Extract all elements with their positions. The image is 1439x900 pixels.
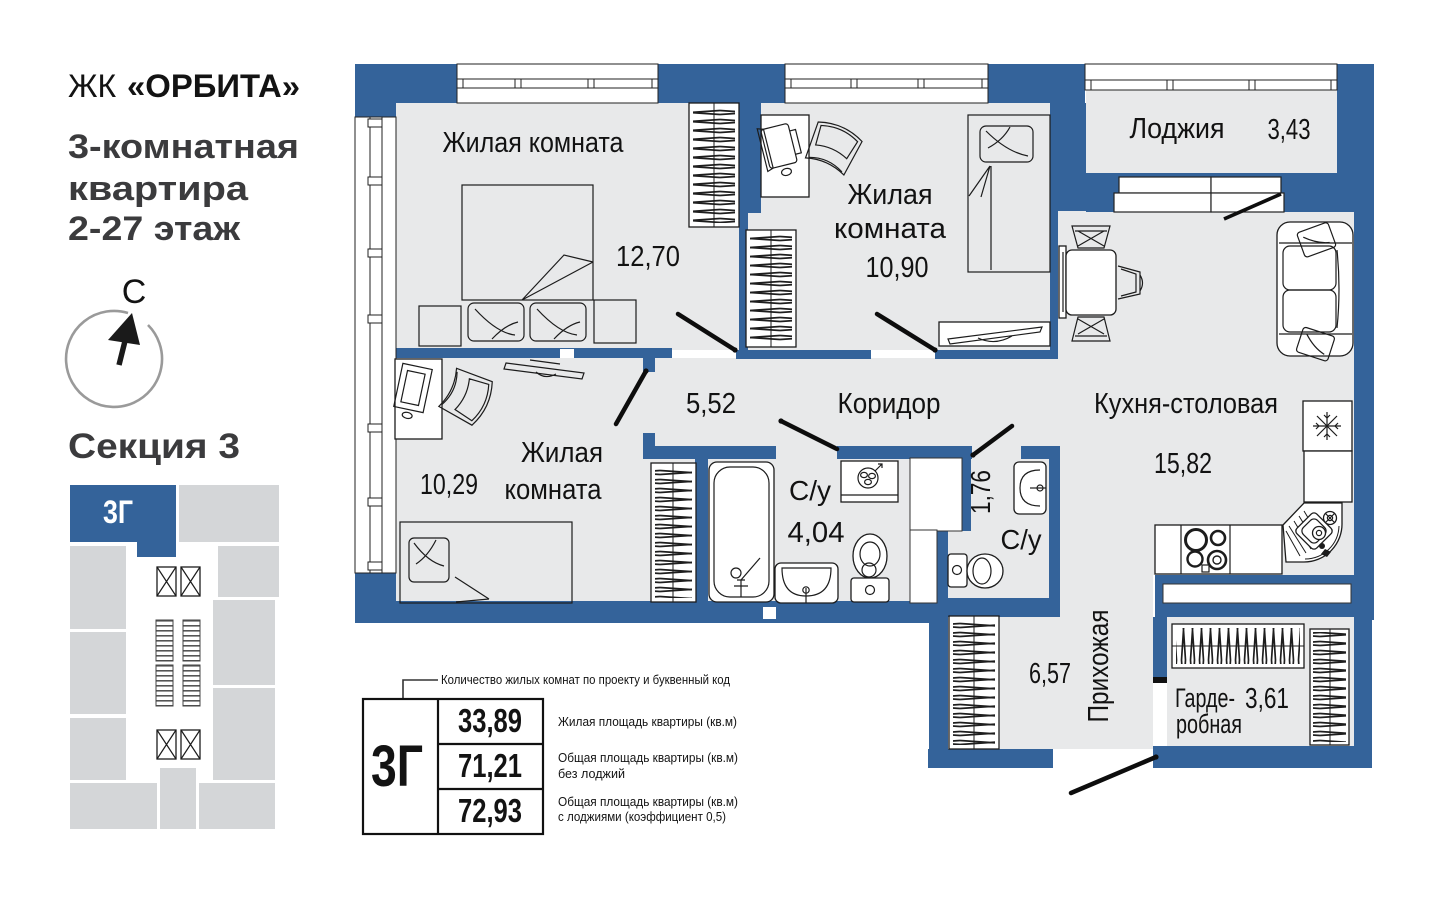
svg-text:3,61: 3,61 [1245,683,1289,715]
svg-text:комната: комната [834,213,947,245]
svg-text:12,70: 12,70 [616,241,680,273]
svg-text:6,57: 6,57 [1029,658,1071,690]
svg-text:3,43: 3,43 [1268,114,1311,146]
svg-text:5,52: 5,52 [686,388,736,420]
svg-text:Количество жилых комнат по про: Количество жилых комнат по проекту и бук… [441,673,731,687]
svg-text:3Г: 3Г [371,734,423,799]
svg-text:робная: робная [1176,709,1242,739]
svg-text:3Г: 3Г [103,494,133,530]
svg-text:15,82: 15,82 [1154,448,1212,480]
svg-text:Жилая: Жилая [848,179,933,211]
svg-text:10,90: 10,90 [866,252,929,284]
svg-text:квартира: квартира [68,170,249,208]
svg-text:1,76: 1,76 [965,470,996,514]
svg-text:с лоджиями (коэффициент 0,5): с лоджиями (коэффициент 0,5) [558,810,726,824]
svg-text:Секция 3: Секция 3 [68,427,240,466]
svg-text:33,89: 33,89 [458,702,522,739]
svg-text:Коридор: Коридор [838,388,941,420]
svg-text:«ОРБИТА»: «ОРБИТА» [127,68,300,104]
svg-text:ЖК: ЖК [68,68,117,104]
svg-text:Жилая: Жилая [521,437,603,469]
svg-text:72,93: 72,93 [458,792,522,829]
svg-text:Прихожая: Прихожая [1083,610,1115,723]
svg-text:С: С [122,273,147,311]
svg-text:С/у: С/у [1001,524,1042,555]
svg-text:Жилая площадь квартиры (кв.м): Жилая площадь квартиры (кв.м) [558,715,737,729]
svg-text:71,21: 71,21 [458,747,522,784]
svg-text:10,29: 10,29 [420,469,478,501]
svg-text:Общая площадь квартиры (кв.м): Общая площадь квартиры (кв.м) [558,795,738,809]
svg-text:С/у: С/у [789,475,831,506]
svg-text:4,04: 4,04 [788,517,845,549]
svg-text:2-27 этаж: 2-27 этаж [68,210,241,248]
svg-text:комната: комната [505,474,603,506]
svg-text:Общая площадь квартиры (кв.м): Общая площадь квартиры (кв.м) [558,751,738,765]
svg-text:3-комнатная: 3-комнатная [68,128,299,166]
svg-text:Лоджия: Лоджия [1130,113,1225,145]
svg-text:без лоджий: без лоджий [558,767,625,781]
svg-text:Жилая комната: Жилая комната [443,127,625,159]
svg-text:Кухня-столовая: Кухня-столовая [1094,388,1278,420]
